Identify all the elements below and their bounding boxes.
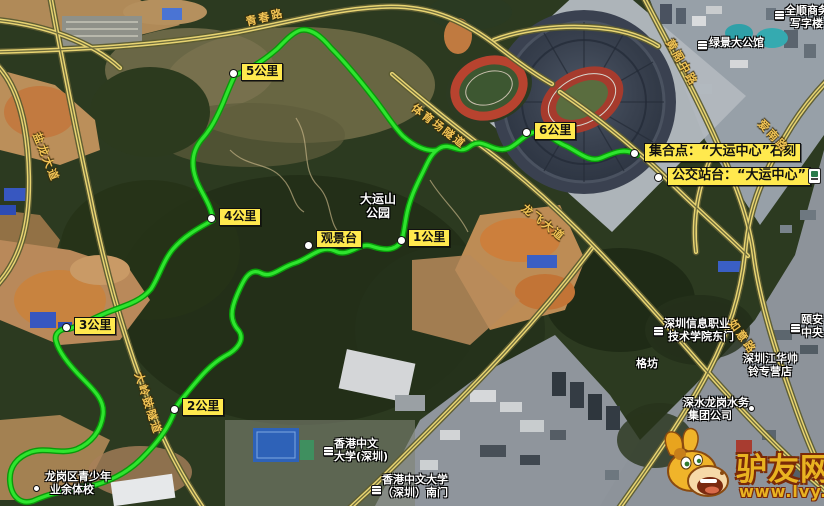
- poi-text: （深圳）南门: [382, 486, 448, 499]
- poi-label-sziit: 深圳信息职业 技术学院东门: [664, 317, 734, 343]
- building-icon: [653, 326, 664, 337]
- route-marker-dot-3km[interactable]: [62, 323, 71, 332]
- building-icon: [697, 40, 708, 51]
- route-marker-dot-5km[interactable]: [229, 69, 238, 78]
- poi-text: 全顺商务: [785, 4, 824, 17]
- poi-text: 颐安: [801, 313, 823, 326]
- poi-text: 深圳信息职业: [664, 317, 734, 330]
- park-name-label: 大运山 公园: [360, 192, 396, 221]
- poi-label-yian: 颐安 中央: [801, 313, 823, 339]
- km-marker-6[interactable]: 6公里: [534, 122, 576, 140]
- viewpoint-marker[interactable]: 观景台: [316, 230, 362, 248]
- poi-label-shenshui: 深水龙岗水务 集团公司: [683, 396, 749, 422]
- km-marker-3[interactable]: 3公里: [74, 317, 116, 335]
- park-name-line1: 大运山: [360, 192, 396, 206]
- poi-label-sports-school: 龙岗区青少年 业余体校: [45, 470, 111, 496]
- poi-dot-sports-school: [33, 485, 40, 492]
- viewpoint-dot[interactable]: [304, 241, 313, 250]
- poi-label-lvjing: 绿景大公馆: [709, 36, 764, 49]
- park-name-line2: 公园: [366, 206, 396, 220]
- bus-stop-dot[interactable]: [654, 173, 663, 182]
- poi-text: 中央: [801, 326, 823, 339]
- poi-text: 业余体校: [50, 483, 111, 496]
- poi-label-jianghua: 深圳江华帅 铃专营店: [743, 352, 798, 378]
- km-marker-1[interactable]: 1公里: [408, 229, 450, 247]
- route-marker-dot-1km[interactable]: [397, 236, 406, 245]
- km-marker-4[interactable]: 4公里: [219, 208, 261, 226]
- poi-text: 龙岗区青少年: [45, 470, 111, 483]
- route-marker-dot-6km[interactable]: [522, 128, 531, 137]
- poi-label-quanshun: 全顺商务 写字楼: [785, 4, 824, 30]
- poi-text: 香港中文大学: [382, 473, 448, 486]
- poi-label-gefang: 格坊: [636, 357, 658, 370]
- poi-label-cuhk: 香港中文 大学(深圳): [334, 437, 388, 463]
- donkey-mascot-logo: [650, 427, 746, 506]
- poi-text: 铃专营店: [748, 365, 798, 378]
- satellite-map[interactable]: 1公里 2公里 3公里 4公里 5公里 6公里 观景台 集合点：“大运中心”石刻…: [0, 0, 824, 506]
- poi-label-cuhk-gate: 香港中文大学 （深圳）南门: [382, 473, 448, 499]
- meeting-point-dot[interactable]: [630, 149, 639, 158]
- poi-text: 格坊: [636, 357, 658, 370]
- poi-text: 深水龙岗水务: [683, 396, 749, 409]
- bus-stop-marker[interactable]: 公交站台：“大运中心”: [667, 167, 811, 186]
- route-marker-dot-2km[interactable]: [170, 405, 179, 414]
- building-icon: [371, 485, 382, 496]
- watermark-site-url: www.lvy.cn: [739, 482, 824, 501]
- building-icon: [790, 323, 801, 334]
- bus-stop-icon: [808, 168, 821, 184]
- poi-text: 写字楼: [790, 17, 824, 30]
- building-icon: [323, 446, 334, 457]
- building-icon: [774, 10, 785, 21]
- poi-text: 技术学院东门: [668, 330, 734, 343]
- poi-dot-water-company: [748, 405, 755, 412]
- poi-text: 绿景大公馆: [709, 36, 764, 49]
- route-marker-dot-4km[interactable]: [207, 214, 216, 223]
- km-marker-2[interactable]: 2公里: [182, 398, 224, 416]
- poi-text: 集团公司: [688, 409, 749, 422]
- km-marker-5[interactable]: 5公里: [241, 63, 283, 81]
- poi-text: 香港中文: [334, 437, 388, 450]
- poi-text: 大学(深圳): [334, 450, 388, 463]
